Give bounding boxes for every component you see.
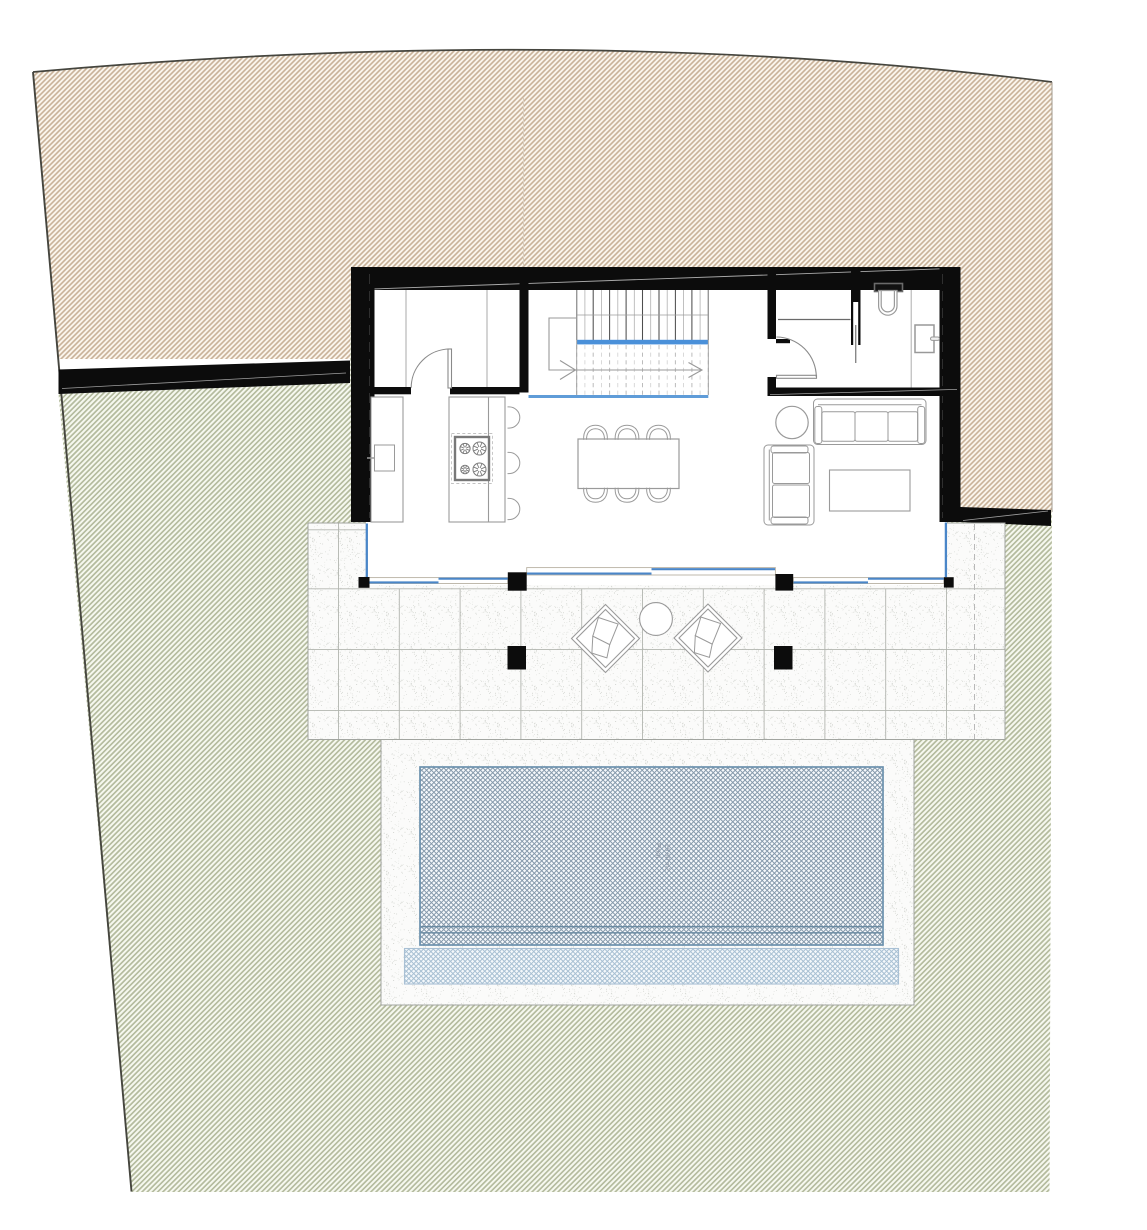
svg-text:26.60 m2: 26.60 m2 (664, 844, 671, 871)
svg-text:Pool: Pool (654, 843, 663, 858)
